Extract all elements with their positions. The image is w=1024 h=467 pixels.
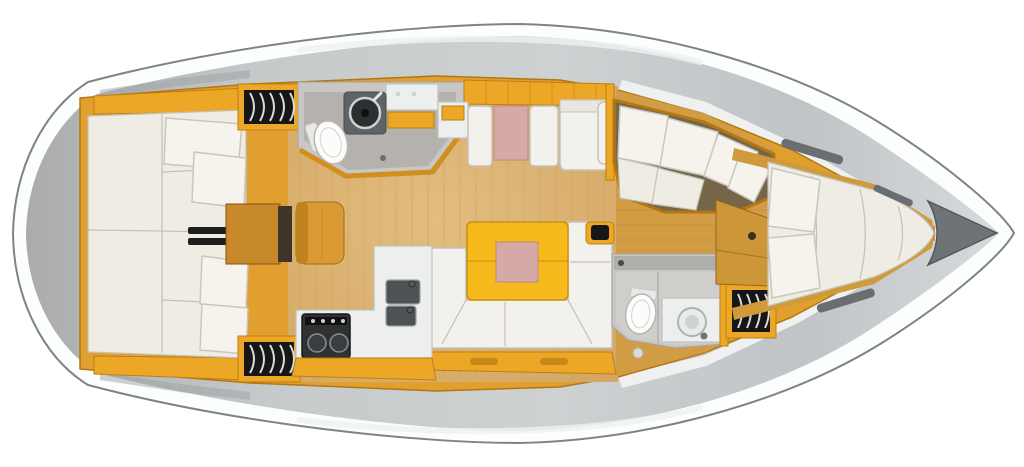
vanity-drawer	[388, 112, 434, 128]
stove-knob	[311, 319, 315, 323]
sink-faucet	[409, 281, 415, 287]
sink-faucet	[407, 307, 413, 313]
stove-knob	[321, 319, 325, 323]
stove-burner	[330, 334, 348, 352]
step	[188, 238, 228, 245]
nav-seat-back	[296, 202, 308, 264]
galley-base-trim	[292, 358, 436, 380]
yacht-floor-plan	[0, 0, 1024, 467]
chart-table-panel	[278, 206, 292, 262]
fridge-drawer	[442, 106, 464, 120]
stove-knob	[341, 319, 345, 323]
vanity-counter	[386, 84, 438, 110]
basin-drain	[361, 109, 369, 117]
stove-knob	[331, 319, 335, 323]
aft-cabin-port	[88, 88, 246, 238]
basin-drain	[685, 315, 699, 329]
chart-table	[226, 204, 280, 264]
back-cushion	[618, 106, 668, 166]
desk-knob	[748, 232, 756, 240]
porthole	[633, 348, 643, 358]
table-insert	[496, 242, 538, 282]
dinette-bench-forward	[468, 106, 492, 166]
aft-cabin-starboard	[88, 230, 248, 380]
pillow	[768, 168, 820, 232]
basin-faucet	[701, 333, 708, 340]
mast-post	[591, 225, 609, 240]
head-wall-top	[614, 256, 722, 270]
floor-plan-canvas	[0, 0, 1024, 467]
drawer-handle	[470, 358, 498, 365]
storage-drawers	[424, 352, 616, 374]
hanging-locker-starboard	[238, 336, 300, 382]
vanity-knob	[396, 92, 401, 97]
dinette-bench-aft	[530, 106, 558, 166]
vanity-knob	[412, 92, 417, 97]
pillow	[768, 234, 820, 298]
drawer-handle	[540, 358, 568, 365]
nav-station	[226, 202, 344, 264]
wall-fitting	[618, 260, 624, 266]
floor-drain	[380, 155, 386, 161]
stove-burner	[308, 334, 326, 352]
step	[188, 227, 228, 234]
pillow	[192, 152, 246, 208]
cocktail-table	[494, 106, 528, 160]
hanging-locker-port	[238, 84, 300, 130]
